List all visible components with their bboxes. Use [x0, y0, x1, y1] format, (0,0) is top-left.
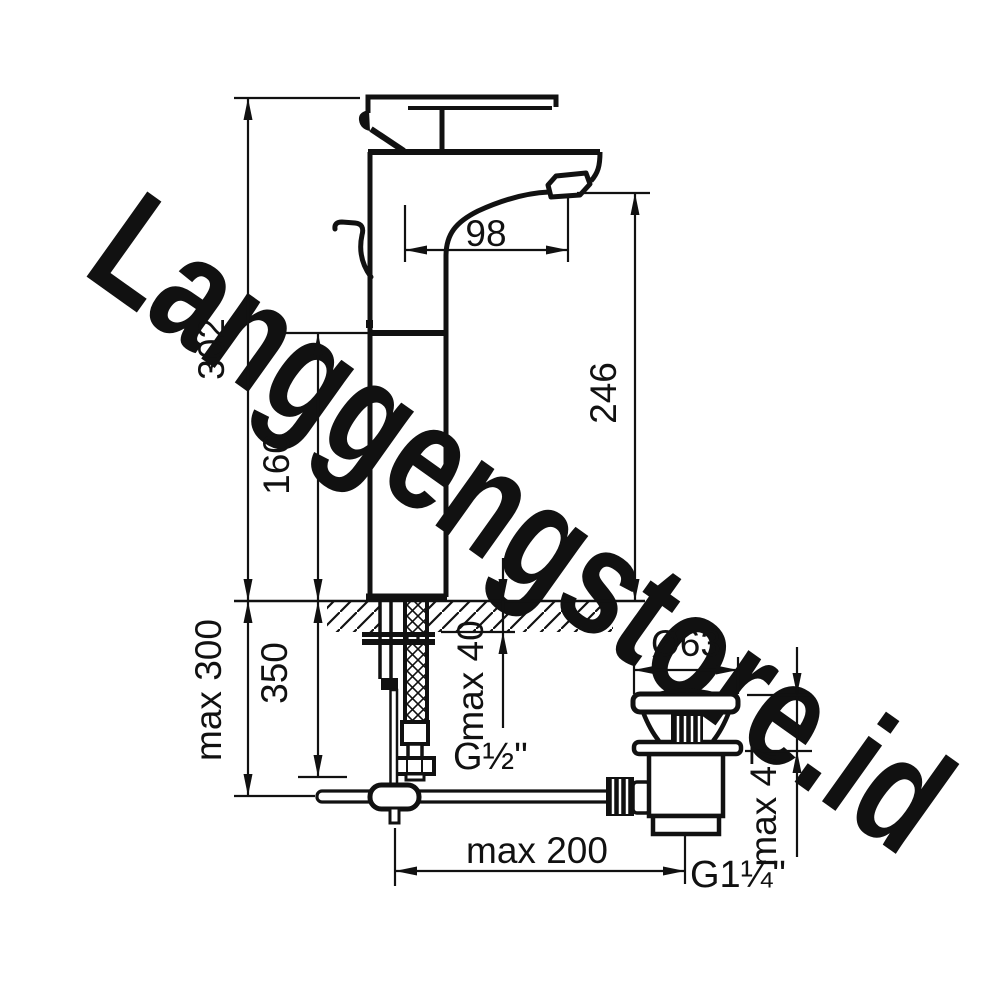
dim-outlet-height: 246	[583, 362, 624, 424]
supply-hose	[396, 600, 434, 780]
hose-tip	[406, 774, 424, 780]
handle-hub	[359, 110, 370, 131]
drain-body	[649, 754, 723, 816]
stud-nut	[381, 678, 398, 690]
faucet-handle	[359, 97, 556, 151]
dim-waste-diameter: Ø63	[651, 623, 721, 664]
hose-fitting	[402, 722, 428, 744]
drain-flange	[634, 742, 741, 754]
technical-drawing-canvas: Langgengstore.id	[0, 0, 1000, 1000]
hose-hex-nut	[396, 758, 434, 774]
hose-neck	[408, 744, 422, 758]
dim-overall-height: 302	[191, 318, 232, 380]
dim-max-deck-waste: max 47	[743, 745, 784, 866]
rod-tail	[390, 808, 399, 823]
pop-up-waste-drain	[606, 691, 741, 835]
column-detail	[366, 320, 373, 328]
drain-tailpiece	[653, 816, 719, 834]
dim-max-below-deck: max 300	[188, 619, 229, 761]
rod-coupling	[370, 785, 419, 809]
drain-cap	[633, 694, 738, 712]
pop-up-knob-lever	[335, 222, 371, 277]
faucet-dimension-drawing: Langgengstore.id	[0, 0, 1000, 1000]
label-supply-thread: G½"	[453, 736, 528, 778]
dim-max-deck-faucet: max 40	[450, 620, 491, 741]
dim-hose-length: 350	[254, 642, 295, 704]
countertop-hatch-left	[327, 602, 379, 632]
dim-spout-reach: 98	[465, 213, 506, 254]
dim-body-height: 160	[256, 433, 297, 495]
label-waste-thread: G1¼"	[690, 854, 786, 896]
dim-rod-reach: max 200	[466, 830, 608, 871]
countertop	[234, 601, 645, 632]
horizontal-lever-rod	[317, 791, 612, 802]
